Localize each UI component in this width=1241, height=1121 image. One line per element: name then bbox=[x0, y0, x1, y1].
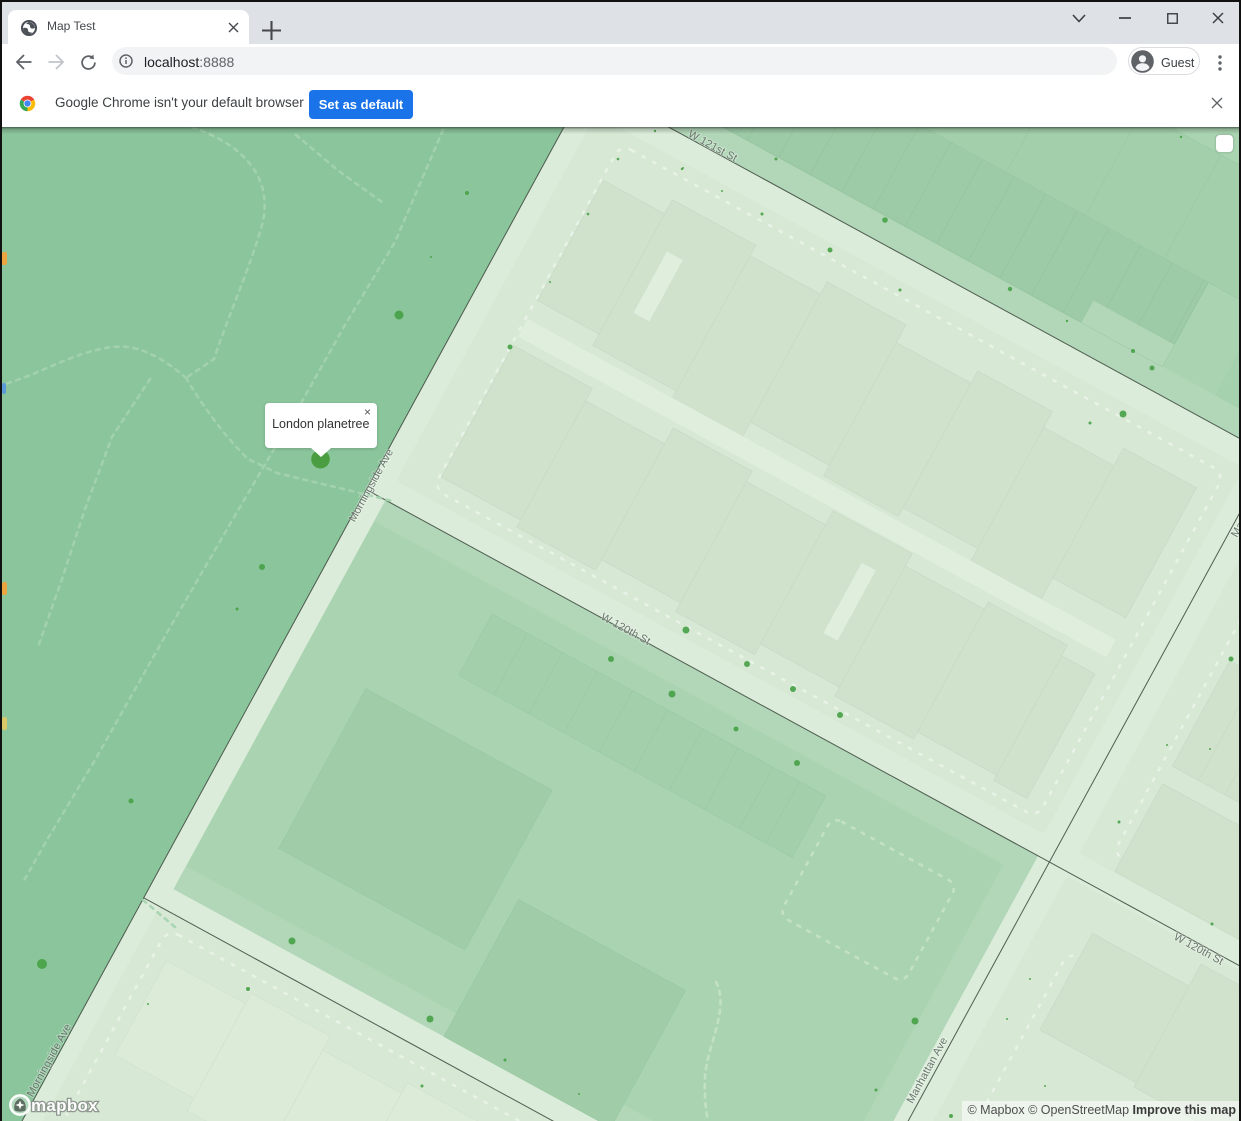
svg-text:mapbox: mapbox bbox=[31, 1096, 98, 1115]
